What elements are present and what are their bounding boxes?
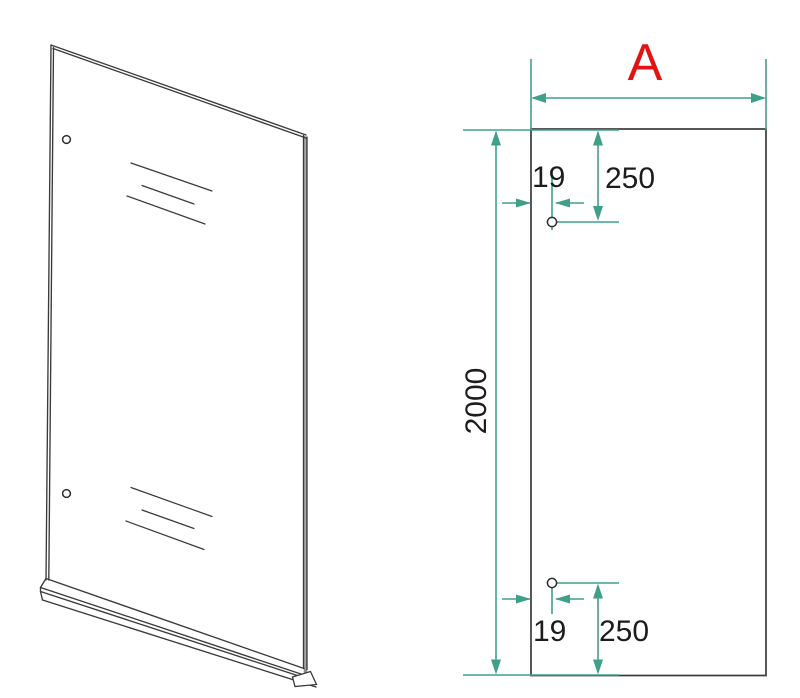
top-hole-vertical-offset-label: 250 <box>605 162 655 195</box>
panel-outline <box>531 129 766 676</box>
arrow-right-icon <box>516 595 531 604</box>
reflection-line <box>127 196 205 224</box>
bottom-hole-vertical-offset-label: 250 <box>599 615 649 648</box>
glass-panel-technical-drawing: A 2000 19 250 19 250 <box>0 0 800 698</box>
glass-left-edge-outer <box>46 45 51 580</box>
reflection-line <box>131 163 212 191</box>
rail-top-line <box>46 579 304 669</box>
arrow-down-icon <box>593 206 603 221</box>
glass-left-edge-inner <box>49 48 54 581</box>
arrow-up-icon <box>593 584 603 599</box>
rail-right-foot <box>293 672 317 687</box>
front-view: A 2000 19 250 19 250 <box>460 34 766 676</box>
bottom-rail <box>41 579 317 688</box>
rail-mid-line-1 <box>41 588 309 677</box>
reflection-line <box>126 521 204 550</box>
glass-top-edge-outer <box>51 45 306 135</box>
dim-width-A <box>531 93 766 103</box>
iso-hole-bottom <box>63 490 71 498</box>
front-hole-bottom <box>547 578 556 587</box>
drawing-canvas: A 2000 19 250 19 250 <box>0 0 800 698</box>
reflection-lines-lower <box>126 488 212 550</box>
arrow-left-icon <box>555 199 570 208</box>
arrow-left-icon <box>555 595 570 604</box>
arrow-down-icon <box>593 660 603 675</box>
arrow-down-icon <box>491 660 501 675</box>
arrow-right-icon <box>751 93 766 103</box>
rail-bottom-line <box>43 600 317 687</box>
rail-mid-line-2 <box>41 592 310 680</box>
bottom-hole-side-offset-label: 19 <box>533 615 566 648</box>
top-hole-side-offset-label: 19 <box>532 161 565 194</box>
arrow-up-icon <box>491 131 501 146</box>
width-label-A: A <box>628 34 663 92</box>
dim-bottom-19 <box>502 583 584 614</box>
reflection-lines-upper <box>127 163 212 224</box>
front-hole-top <box>547 217 556 226</box>
reflection-line <box>131 488 212 517</box>
height-label-2000: 2000 <box>460 368 493 435</box>
arrow-right-icon <box>516 199 531 208</box>
iso-view <box>41 45 317 687</box>
arrow-left-icon <box>531 93 546 103</box>
arrow-up-icon <box>593 131 603 146</box>
dimension-lines <box>463 59 766 675</box>
reflection-line <box>142 510 194 529</box>
reflection-line <box>142 186 194 205</box>
iso-hole-top <box>63 136 71 144</box>
glass-top-edge-inner <box>53 49 306 139</box>
